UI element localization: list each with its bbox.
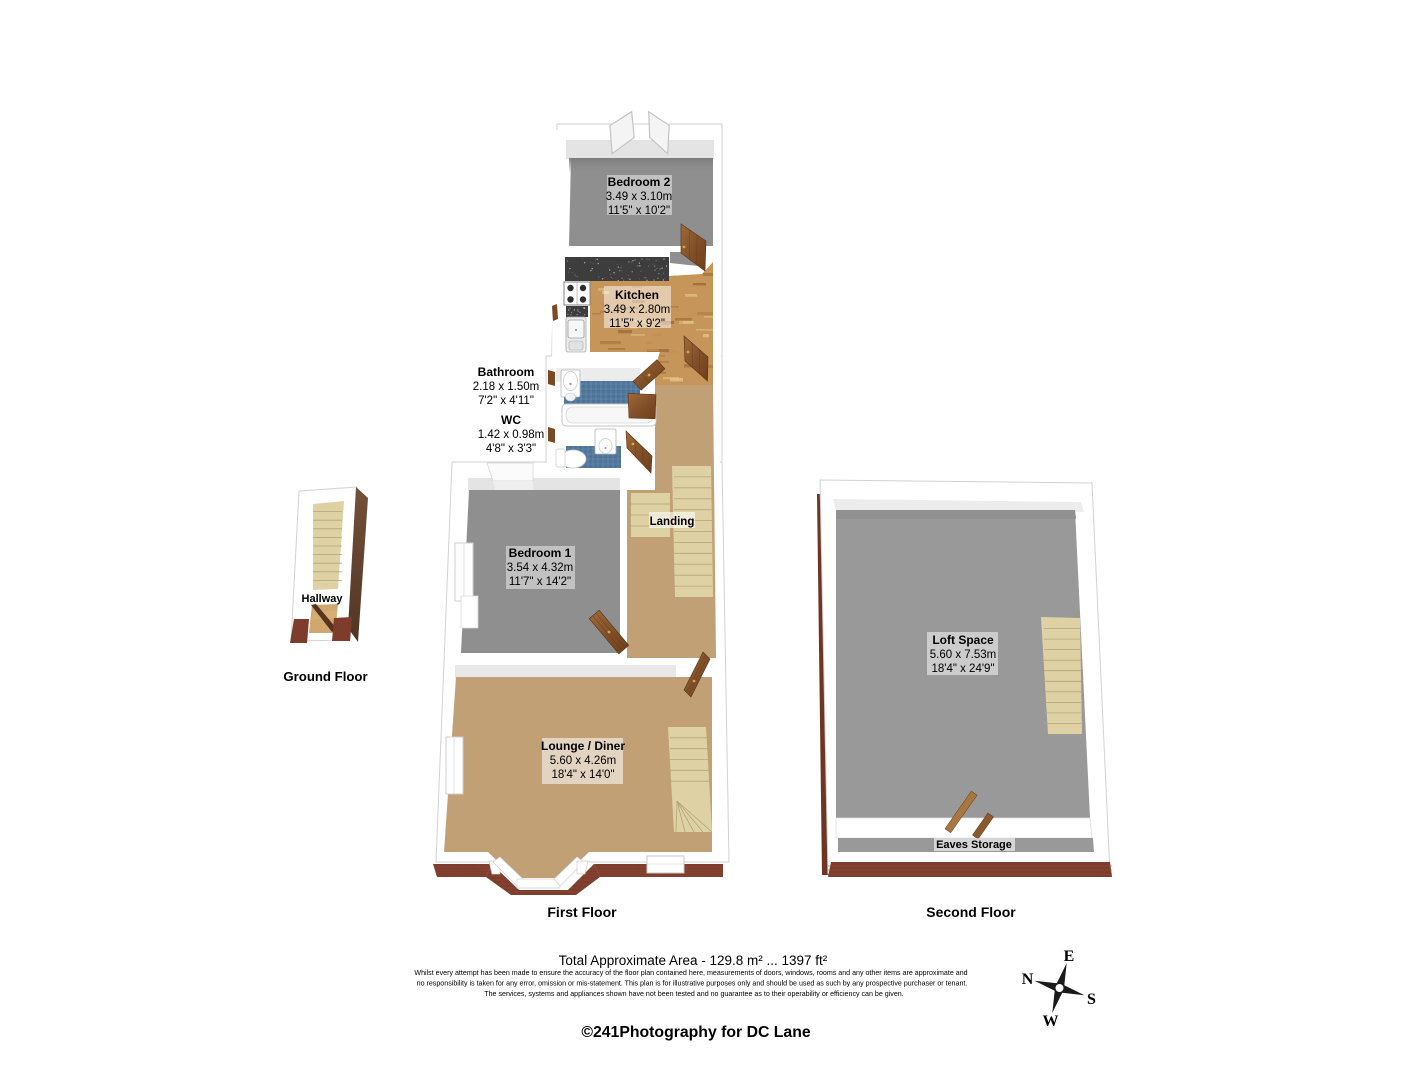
svg-text:Bedroom 1: Bedroom 1 (509, 546, 572, 560)
svg-text:Total Approximate Area - 129.8: Total Approximate Area - 129.8 m² ... 13… (559, 953, 828, 968)
svg-text:Bathroom: Bathroom (478, 365, 535, 379)
svg-text:E: E (1064, 948, 1075, 965)
svg-text:3.54 x 4.32m: 3.54 x 4.32m (507, 562, 573, 574)
svg-text:Ground Floor: Ground Floor (283, 669, 367, 684)
svg-text:Kitchen: Kitchen (615, 288, 659, 302)
svg-text:18'4" x 24'9": 18'4" x 24'9" (931, 663, 994, 675)
svg-text:First Floor: First Floor (547, 904, 617, 920)
svg-text:N: N (1022, 971, 1034, 988)
svg-text:Bedroom 2: Bedroom 2 (608, 175, 671, 189)
svg-text:WC: WC (501, 413, 521, 427)
svg-text:5.60 x 7.53m: 5.60 x 7.53m (930, 649, 996, 661)
svg-text:Second Floor: Second Floor (926, 904, 1016, 920)
svg-text:no responsibility is taken for: no responsibility is taken for any error… (417, 980, 968, 988)
svg-text:1.42 x 0.98m: 1.42 x 0.98m (478, 429, 544, 441)
svg-text:5.60 x 4.26m: 5.60 x 4.26m (550, 755, 616, 767)
svg-text:S: S (1087, 991, 1096, 1008)
svg-text:11'7" x 14'2": 11'7" x 14'2" (509, 576, 571, 588)
svg-text:The services, systems and appl: The services, systems and appliances sho… (484, 990, 903, 998)
svg-text:11'5" x 10'2": 11'5" x 10'2" (608, 205, 670, 217)
svg-text:Lounge / Diner: Lounge / Diner (541, 739, 625, 753)
svg-text:©241Photography for DC Lane: ©241Photography for DC Lane (581, 1024, 811, 1041)
svg-text:7'2" x 4'11": 7'2" x 4'11" (478, 395, 534, 407)
svg-text:18'4" x 14'0": 18'4" x 14'0" (551, 769, 614, 781)
svg-text:3.49 x 2.80m: 3.49 x 2.80m (604, 304, 670, 316)
svg-text:2.18 x 1.50m: 2.18 x 1.50m (473, 381, 539, 393)
svg-text:3.49 x 3.10m: 3.49 x 3.10m (606, 191, 672, 203)
svg-text:Landing: Landing (650, 516, 695, 528)
svg-text:11'5" x 9'2": 11'5" x 9'2" (609, 318, 665, 330)
svg-text:W: W (1043, 1013, 1059, 1030)
svg-text:Eaves Storage: Eaves Storage (936, 839, 1012, 851)
svg-text:Loft Space: Loft Space (932, 633, 994, 647)
svg-text:4'8" x 3'3": 4'8" x 3'3" (486, 443, 536, 455)
svg-text:Hallway: Hallway (302, 593, 344, 605)
svg-text:Whilst every attempt has been: Whilst every attempt has been made to en… (414, 969, 967, 977)
